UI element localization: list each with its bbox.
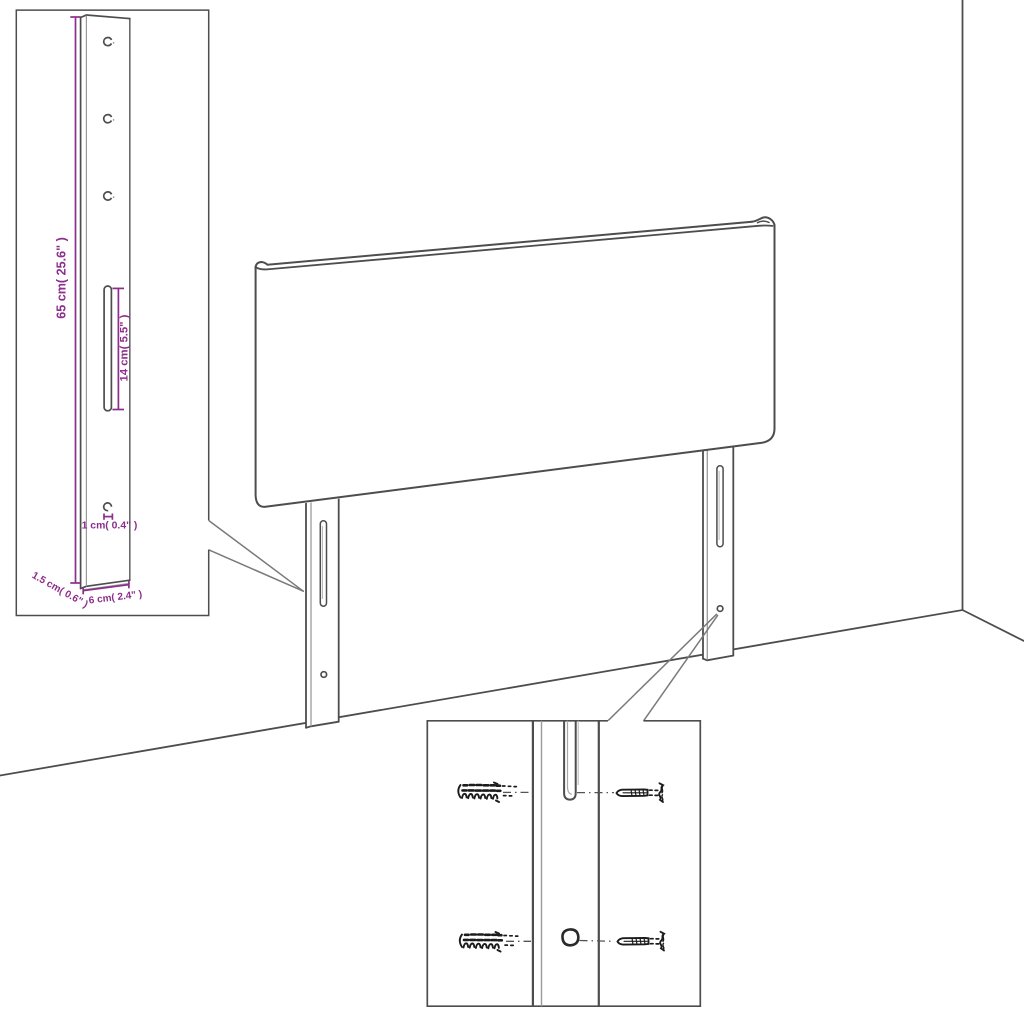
svg-text:65 cm( 25.6" ): 65 cm( 25.6" ): [55, 237, 69, 319]
svg-text:1 cm( 0.4" ): 1 cm( 0.4" ): [82, 521, 138, 532]
svg-text:14 cm( 5.5" ): 14 cm( 5.5" ): [119, 314, 131, 381]
